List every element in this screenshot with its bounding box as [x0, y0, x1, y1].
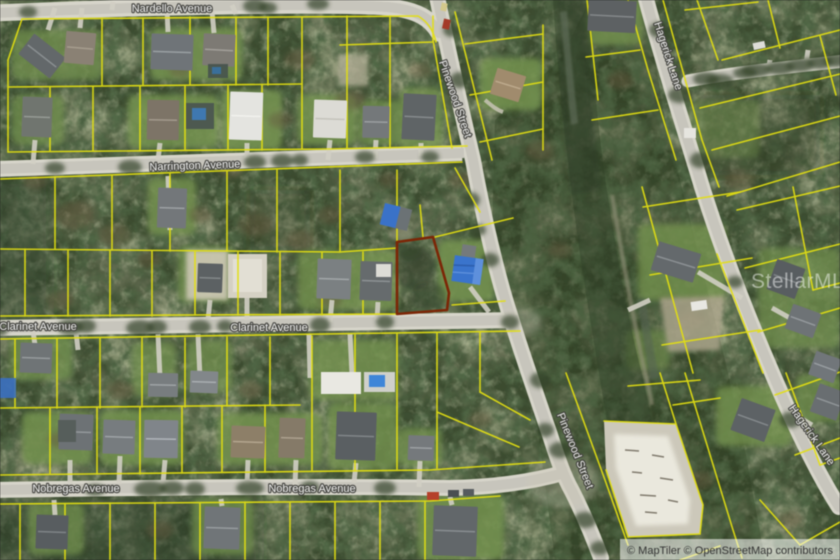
svg-text:StellarMLS: StellarMLS — [751, 270, 840, 293]
svg-text:© MapTiler © OpenStreetMap con: © MapTiler © OpenStreetMap contributors — [627, 545, 833, 557]
svg-text:Clarinet Avenue: Clarinet Avenue — [0, 321, 77, 333]
svg-text:Clarinet Avenue: Clarinet Avenue — [230, 322, 307, 334]
svg-text:Nardello Avenue: Nardello Avenue — [132, 3, 213, 15]
svg-text:Nobregas Avenue: Nobregas Avenue — [32, 483, 119, 495]
svg-text:Nobregas Avenue: Nobregas Avenue — [268, 483, 355, 495]
